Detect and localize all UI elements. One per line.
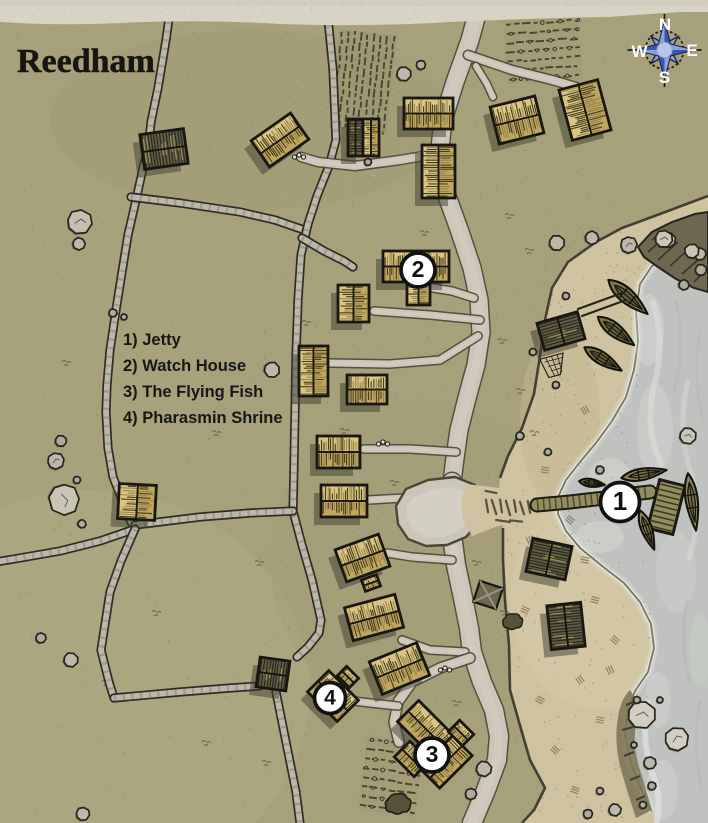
svg-text:3: 3 xyxy=(426,741,439,767)
svg-text:2) Watch House: 2) Watch House xyxy=(123,357,246,375)
svg-text:1: 1 xyxy=(613,486,627,516)
svg-text:Reedham: Reedham xyxy=(17,43,155,80)
svg-text:4: 4 xyxy=(324,687,336,710)
svg-text:S: S xyxy=(659,68,670,87)
svg-text:4) Pharasmin Shrine: 4) Pharasmin Shrine xyxy=(123,409,283,427)
svg-text:1) Jetty: 1) Jetty xyxy=(123,331,182,349)
svg-text:E: E xyxy=(686,41,697,60)
svg-text:2: 2 xyxy=(412,256,425,282)
svg-text:3) The Flying Fish: 3) The Flying Fish xyxy=(123,383,263,401)
svg-text:W: W xyxy=(631,42,648,61)
svg-text:N: N xyxy=(659,15,671,34)
